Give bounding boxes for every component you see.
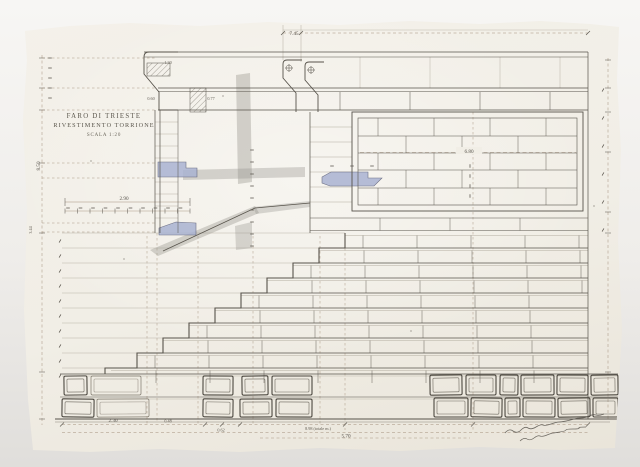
micro-numeral [602, 200, 604, 203]
block-inner-edge [524, 378, 551, 392]
stone-washes [150, 73, 382, 256]
block-inner-edge [94, 379, 138, 392]
rusticated-block [591, 375, 618, 395]
rusticated-block [97, 399, 149, 417]
micro-numeral [59, 239, 61, 242]
block-inner-edge [508, 401, 517, 414]
dim-cornice-offset: 0.77 [207, 96, 214, 101]
rusticated-block [557, 375, 588, 395]
block-inner-edge [243, 402, 269, 414]
dim-base-small: 0.48 [164, 419, 171, 424]
title-line1: FARO DI TRIESTE [67, 113, 142, 120]
rusticated-block [240, 399, 272, 417]
dim-base-left: 2.30 [108, 418, 117, 424]
title-scale: SCALA 1:20 [87, 133, 121, 138]
title-line2: RIVESTIMENTO TORRIONE [53, 122, 154, 129]
micro-numeral [59, 359, 61, 362]
masonry-course-lines [62, 122, 618, 399]
title-block: FARO DI TRIESTE RIVESTIMENTO TORRIONE SC… [53, 113, 154, 138]
dim-panel-width: 6.80 [464, 149, 473, 155]
masonry-joint-lines [155, 57, 582, 383]
rusticated-block [272, 376, 312, 395]
dim-base-total: 8.98 (totale m.) [305, 426, 331, 431]
gray-wash-core-band [236, 73, 252, 184]
architectural-drawing: FARO DI TRIESTE RIVESTIMENTO TORRIONE SC… [0, 0, 640, 467]
rusticated-block [471, 398, 502, 417]
micro-numeral [59, 314, 61, 317]
cornice-profile-left [144, 52, 178, 110]
dim-cornice-width: 1.30 [164, 60, 171, 65]
block-inner-edge [474, 401, 499, 414]
dim-ledge-width: 2.90 [119, 196, 128, 202]
rusticated-block [64, 376, 87, 395]
dim-base-inner: 5.70 [341, 434, 350, 440]
block-inner-edge [503, 378, 515, 392]
dim-top-width: 7.45 [289, 31, 298, 37]
blue-stone-upper [158, 162, 197, 177]
block-inner-edge [561, 401, 587, 414]
block-inner-edge [206, 379, 230, 392]
rusticated-block [91, 376, 141, 395]
dim-left-height-upper: 8.50 [36, 161, 42, 170]
block-inner-edge [560, 378, 585, 392]
block-inner-edge [100, 402, 146, 414]
rusticated-block [500, 375, 518, 395]
paper-speck [90, 160, 92, 162]
rusticated-block [505, 398, 520, 417]
micro-numeral [59, 254, 61, 257]
rusticated-block [242, 376, 268, 395]
rusticated-block [593, 398, 618, 417]
block-inner-edge [594, 378, 615, 392]
micro-numeral [602, 116, 604, 119]
micro-numeral [59, 269, 61, 272]
micro-numeral [602, 88, 604, 91]
rusticated-block [521, 375, 554, 395]
blue-stone-lower [159, 222, 196, 235]
rusticated-block [430, 375, 462, 395]
paper-speck [222, 95, 224, 97]
ink-linework [55, 52, 619, 422]
dim-base-mid: 0.62 [217, 428, 224, 433]
rusticated-block [62, 399, 94, 417]
dim-left-height-lower: 3.44 [28, 225, 33, 233]
rusticated-block [276, 399, 312, 417]
block-inner-edge [596, 401, 615, 414]
paper-sheet: FARO DI TRIESTE RIVESTIMENTO TORRIONE SC… [0, 0, 640, 467]
panel-outer-border [352, 112, 583, 211]
paper-speck [410, 330, 412, 332]
rusticated-block [434, 398, 468, 417]
block-inner-edge [65, 402, 91, 414]
gray-wash-course-band [183, 167, 305, 180]
cornice-hatch-b [190, 88, 206, 112]
photographed-drawing: FARO DI TRIESTE RIVESTIMENTO TORRIONE SC… [0, 0, 640, 467]
micro-numeral [59, 329, 61, 332]
block-inner-edge [206, 402, 230, 414]
dim-cornice-drop: 0.60 [147, 96, 154, 101]
micro-numeral [59, 284, 61, 287]
block-inner-edge [437, 401, 465, 414]
block-inner-edge [433, 378, 459, 392]
micro-numeral [59, 374, 61, 377]
micro-numeral [59, 299, 61, 302]
panel-inner-border [358, 118, 577, 205]
rusticated-block [523, 398, 555, 417]
paper-speck [123, 258, 125, 260]
block-inner-edge [67, 379, 84, 392]
gray-wash-lower-patch [235, 222, 252, 250]
micro-numeral [602, 144, 604, 147]
rusticated-block [558, 398, 590, 417]
micro-numeral [59, 344, 61, 347]
signature-handwriting [505, 414, 604, 441]
rusticated-blocks [62, 375, 618, 417]
paper-speck [593, 205, 595, 207]
rusticated-block [466, 375, 496, 395]
rusticated-block [203, 376, 233, 395]
center-target-marks [285, 64, 315, 74]
block-inner-edge [469, 378, 493, 392]
block-inner-edge [526, 401, 552, 414]
micro-numeral [602, 172, 604, 175]
block-inner-edge [279, 402, 309, 414]
micro-numeral [602, 228, 604, 231]
block-inner-edge [245, 379, 265, 392]
block-inner-edge [275, 379, 309, 392]
rusticated-block [203, 399, 233, 417]
